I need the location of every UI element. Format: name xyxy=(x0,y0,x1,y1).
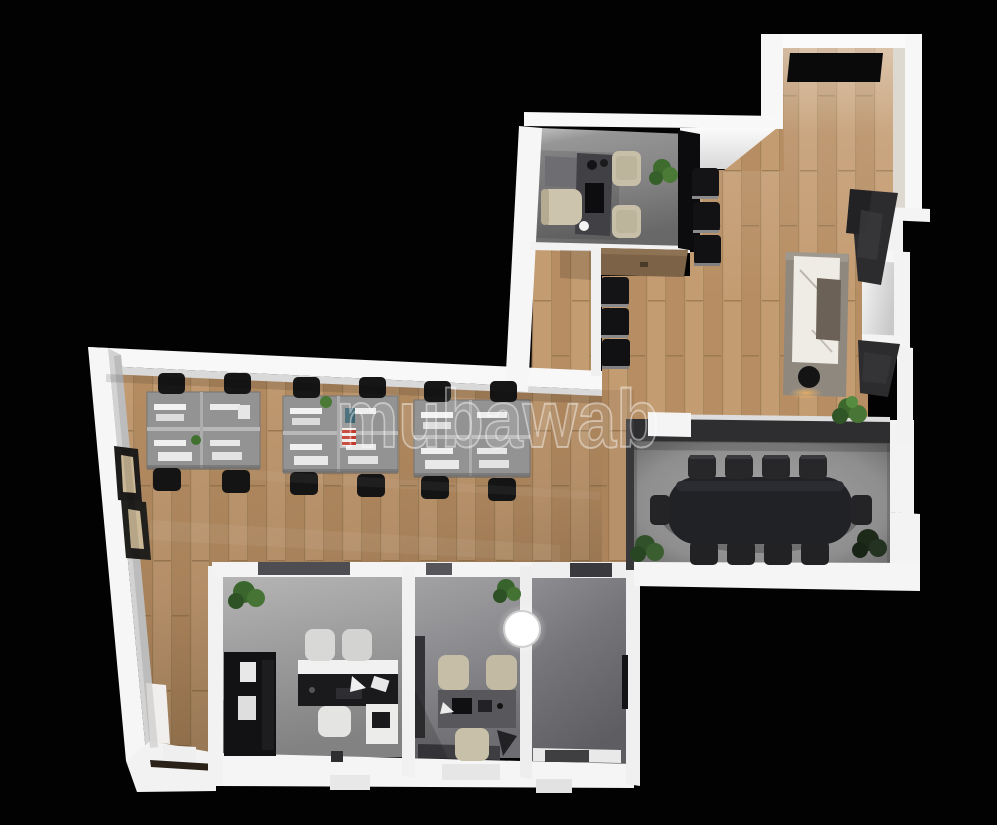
svg-text:mubawab: mubawab xyxy=(336,374,659,465)
